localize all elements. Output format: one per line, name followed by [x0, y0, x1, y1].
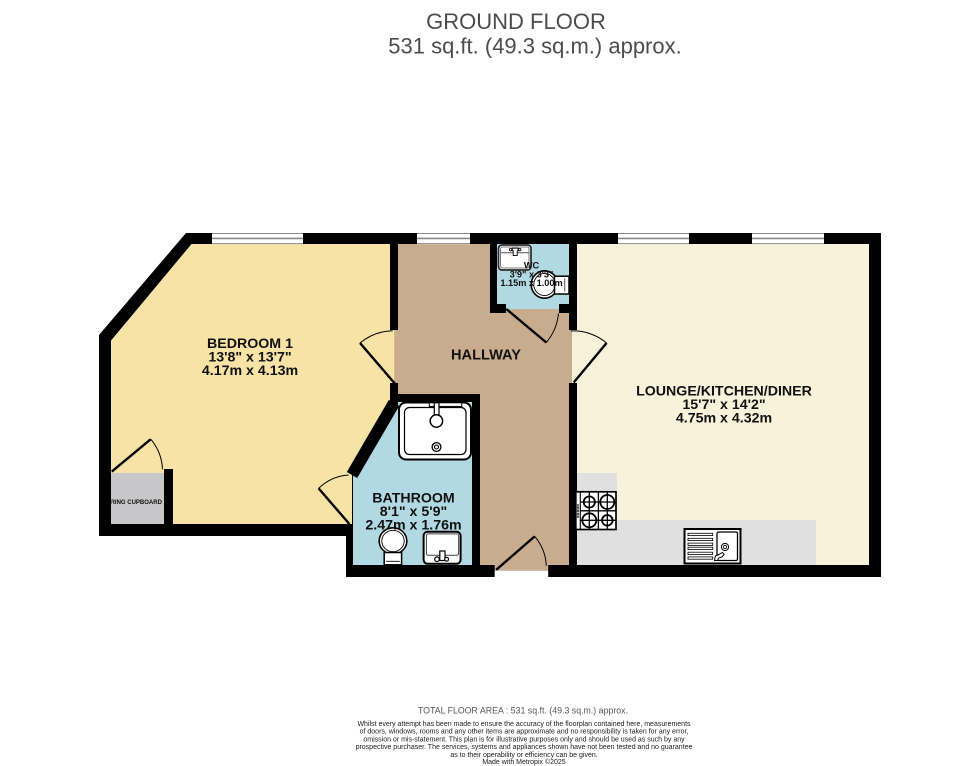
svg-text:4.17m x 4.13m: 4.17m x 4.13m	[202, 363, 298, 379]
svg-text:as to their operability or eff: as to their operability or efficiency ca…	[450, 752, 597, 759]
svg-text:HALLWAY: HALLWAY	[451, 348, 521, 364]
svg-text:omission or mis-statement. Thi: omission or mis-statement. This plan is …	[363, 736, 685, 743]
svg-text:Made with Metropix ©2025: Made with Metropix ©2025	[482, 758, 565, 766]
svg-text:531 sq.ft. (49.3 sq.m.) approx: 531 sq.ft. (49.3 sq.m.) approx.	[388, 34, 681, 59]
svg-text:of doors, windows, rooms and a: of doors, windows, rooms and any other i…	[360, 729, 689, 736]
svg-text:prospective purchaser. The ser: prospective purchaser. The services, sys…	[356, 744, 693, 751]
svg-text:GROUND FLOOR: GROUND FLOOR	[426, 9, 606, 34]
svg-text:2.47m x 1.76m: 2.47m x 1.76m	[365, 518, 461, 534]
svg-text:1.15m x 1.00m: 1.15m x 1.00m	[500, 278, 562, 288]
svg-text:4.75m x 4.32m: 4.75m x 4.32m	[676, 411, 772, 427]
svg-text:Whilst every attempt has been: Whilst every attempt has been made to en…	[357, 721, 691, 728]
svg-text:TOTAL FLOOR AREA : 531 sq.ft.: TOTAL FLOOR AREA : 531 sq.ft. (49.3 sq.m…	[418, 706, 628, 716]
svg-text:AIRING CUPBOARD: AIRING CUPBOARD	[105, 500, 163, 506]
